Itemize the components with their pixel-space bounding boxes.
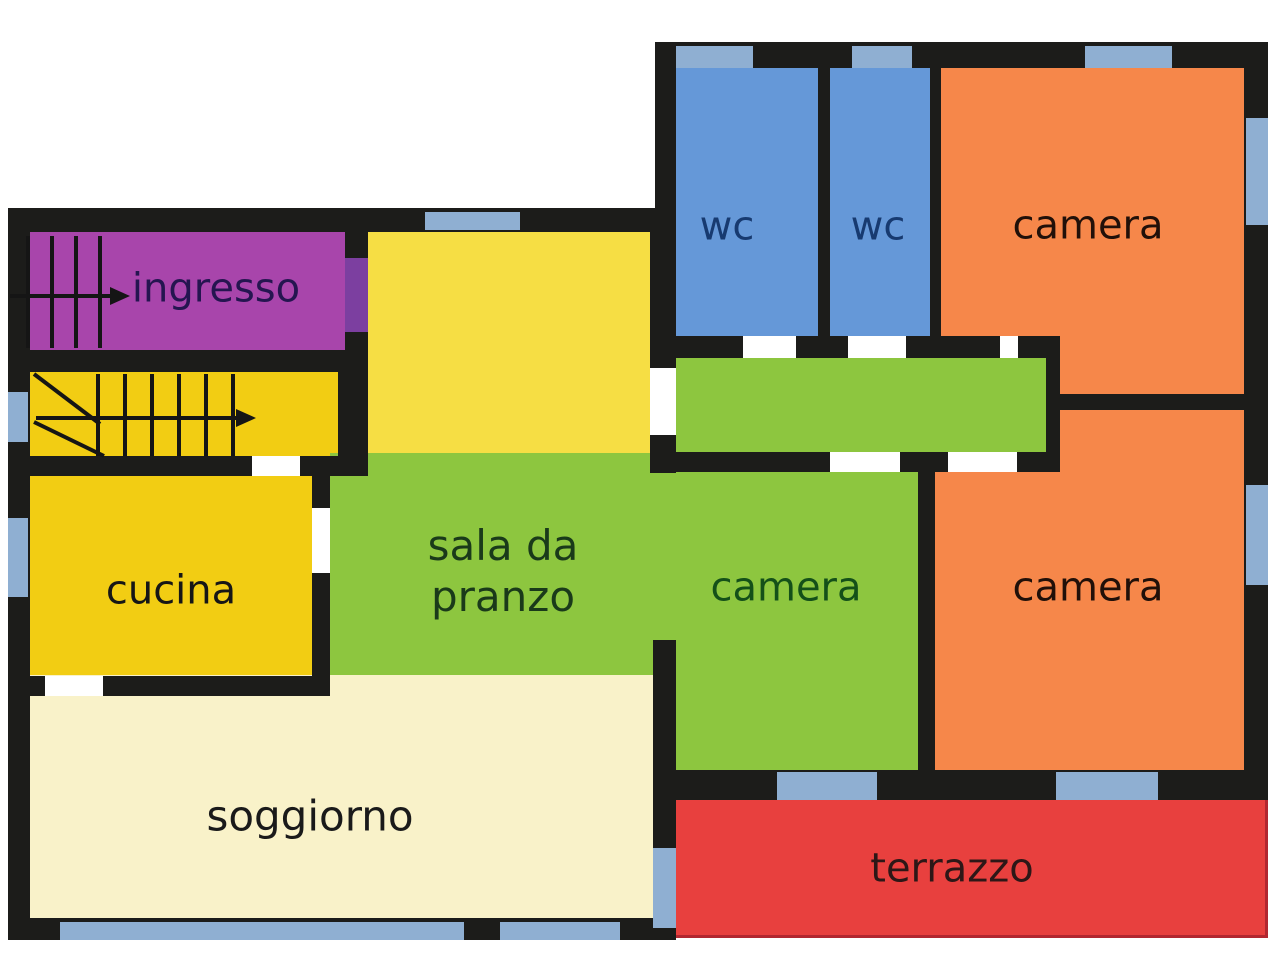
window (500, 922, 620, 940)
window (777, 772, 877, 800)
door-gap (948, 452, 1017, 472)
door-gap (312, 508, 330, 573)
wc-2-label: wc (851, 203, 906, 252)
sala-pranzo-label-line: sala da (428, 520, 579, 571)
room-stairwell (30, 372, 338, 458)
floor-plan: ingressocucinasala dapranzocameracamerac… (0, 0, 1280, 960)
ingresso-label: ingresso (132, 265, 300, 314)
cucina-label-line: cucina (106, 567, 236, 616)
wall-segment (930, 68, 941, 338)
wall-segment (8, 350, 345, 372)
room-corridor (676, 356, 1046, 454)
window (8, 392, 28, 442)
window (1246, 485, 1268, 585)
sala-pranzo-label-line: pranzo (428, 571, 579, 622)
window (60, 922, 464, 940)
terrazzo-label-line: terrazzo (870, 845, 1033, 894)
wall-segment (818, 68, 830, 336)
wc-2-label-line: wc (851, 203, 906, 252)
ingresso-door (345, 258, 368, 332)
ingresso-label-line: ingresso (132, 265, 300, 314)
cucina-label: cucina (106, 567, 236, 616)
wall-segment (312, 474, 330, 678)
wc-1-label: wc (700, 203, 755, 252)
door-gap (45, 676, 103, 696)
window (1246, 118, 1268, 225)
wall-segment (8, 456, 368, 476)
wall-segment (338, 350, 368, 458)
wall-segment (8, 208, 655, 232)
wall-segment (1046, 394, 1244, 410)
window (676, 46, 753, 68)
camera-green-label-line: camera (710, 564, 861, 613)
camera-orange-label-line: camera (1012, 564, 1163, 613)
terrazzo-label: terrazzo (870, 845, 1033, 894)
camera-orange-label: camera (1012, 564, 1163, 613)
door-gap (743, 336, 796, 358)
wc-1-label-line: wc (700, 203, 755, 252)
camera-green-label: camera (710, 564, 861, 613)
door-gap (650, 368, 676, 435)
sala-pranzo-label: sala dapranzo (428, 520, 579, 622)
soggiorno-label: soggiorno (206, 790, 413, 841)
soggiorno-label-line: soggiorno (206, 790, 413, 841)
door-gap (830, 452, 900, 472)
wall-segment (655, 42, 676, 210)
room-upper-room (368, 228, 653, 455)
window (8, 518, 28, 597)
window (1056, 772, 1158, 800)
door-gap (252, 456, 300, 476)
window (425, 212, 520, 230)
window (852, 46, 912, 68)
window (653, 848, 676, 928)
wall-segment (918, 472, 935, 772)
window (1085, 46, 1172, 68)
door-gap (1000, 336, 1018, 358)
camera-top-label-line: camera (1012, 202, 1163, 251)
door-gap (848, 336, 906, 358)
camera-top-label: camera (1012, 202, 1163, 251)
